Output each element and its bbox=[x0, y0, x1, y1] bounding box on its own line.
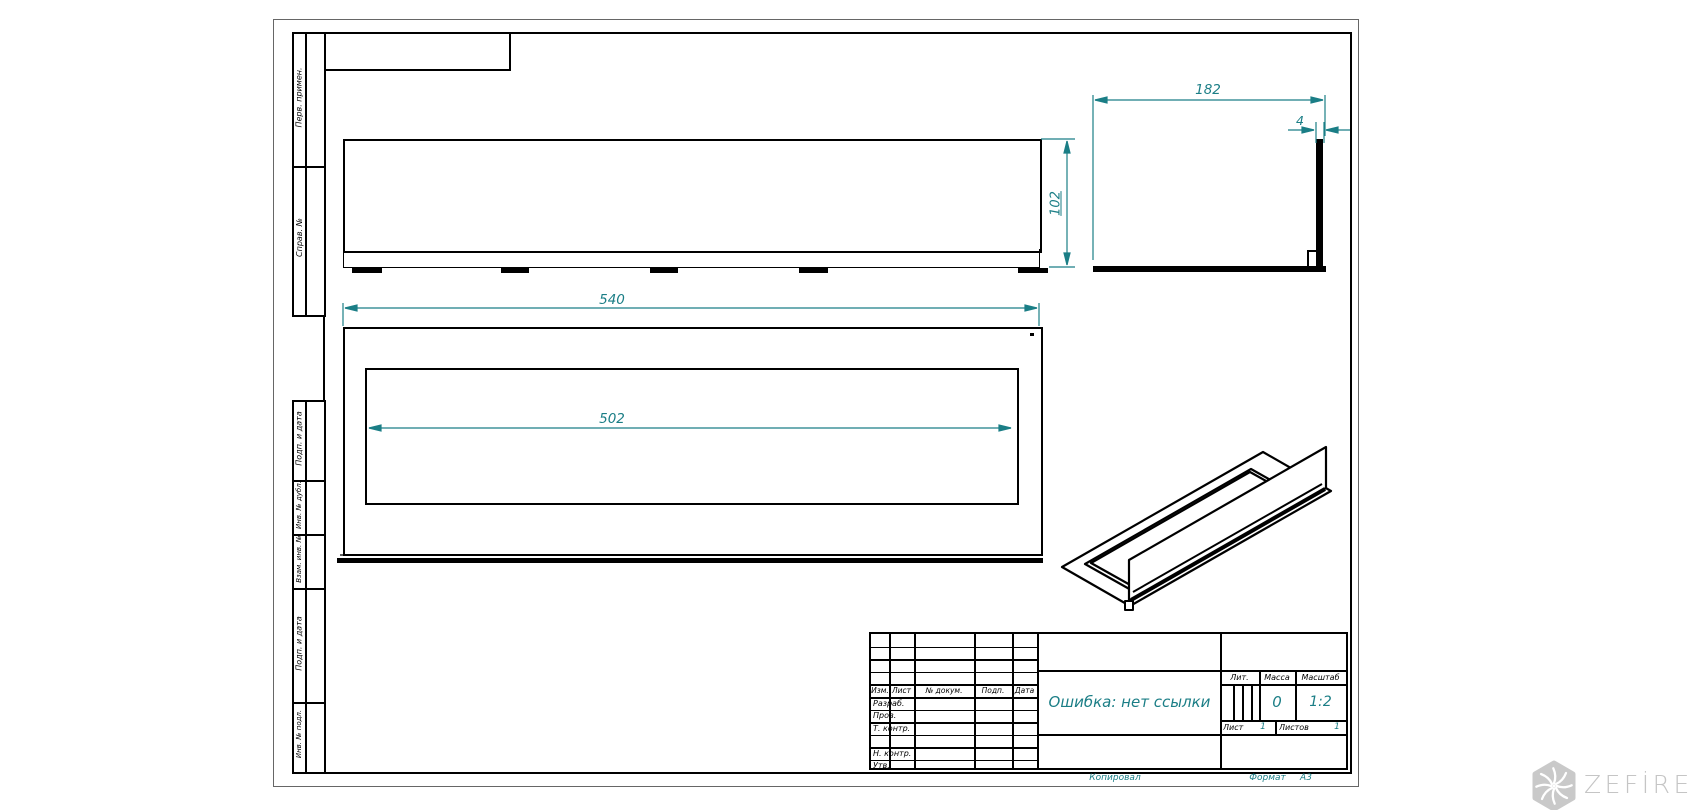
footer-format-value: А3 bbox=[1292, 771, 1320, 784]
tb-lit-label: Лит. bbox=[1220, 670, 1259, 684]
dim-182-label: 182 bbox=[1178, 82, 1238, 98]
tb-list-label: Лист bbox=[1223, 720, 1253, 734]
tb-row-tkontr: Т. контр. bbox=[873, 722, 915, 734]
zefire-logo-text: ZEFİRE bbox=[1584, 770, 1691, 799]
tb-row-razrab: Разраб. bbox=[873, 697, 915, 709]
margin-label: Подп. и дата bbox=[295, 399, 304, 479]
margin-label: Инв. № дубл. bbox=[295, 478, 303, 532]
margin-label: Перв. примен. bbox=[295, 31, 304, 165]
margin-label: Справ. № bbox=[295, 164, 304, 311]
tb-massa-label: Масса bbox=[1259, 670, 1295, 684]
tb-list-value: 1 bbox=[1255, 720, 1271, 734]
front-view-body bbox=[343, 139, 1042, 253]
dim-502-label: 502 bbox=[582, 411, 642, 427]
footer-format-label: Формат bbox=[1240, 771, 1295, 784]
tb-row-utv: Утв. bbox=[873, 760, 915, 772]
dim-102-label: 102 bbox=[1049, 182, 1064, 226]
tb-massa-value: 0 bbox=[1259, 684, 1295, 720]
tb-masshtab-label: Масштаб bbox=[1295, 670, 1346, 684]
tb-col-list: Лист bbox=[889, 684, 914, 697]
tb-listov-value: 1 bbox=[1329, 720, 1345, 734]
plan-view-hole-mark bbox=[1030, 333, 1034, 336]
tb-row-nkontr: Н. контр. bbox=[873, 747, 915, 759]
margin-label: Инв. № подл. bbox=[295, 700, 303, 768]
plan-view-opening bbox=[365, 368, 1019, 505]
tb-col-izm: Изм. bbox=[871, 684, 889, 697]
footer-kopiroval: Копировал bbox=[1075, 771, 1155, 784]
zefire-logo-icon bbox=[1535, 763, 1573, 809]
tb-doc-title: Ошибка: нет ссылки bbox=[1039, 672, 1220, 732]
drawing-sheet-canvas: Перв. примен. Справ. № Подп. и дата Инв.… bbox=[0, 0, 1691, 810]
tb-col-podp: Подп. bbox=[974, 684, 1012, 697]
margin-label: Подп. и дата bbox=[295, 587, 304, 701]
tb-masshtab-value: 1:2 bbox=[1295, 684, 1346, 720]
dim-540-label: 540 bbox=[582, 292, 642, 308]
dim-4-label: 4 bbox=[1290, 113, 1310, 128]
margin-label: Взам. инв. № bbox=[295, 532, 303, 586]
tb-col-dokum: № докум. bbox=[914, 684, 974, 697]
top-left-stamp-box bbox=[323, 32, 511, 71]
tb-row-prov: Пров. bbox=[873, 710, 915, 722]
front-view-base-strip bbox=[343, 249, 1040, 268]
tb-listov-label: Листов bbox=[1279, 720, 1321, 734]
tb-col-data: Дата bbox=[1012, 684, 1037, 697]
title-block: Изм. Лист № докум. Подп. Дата Разраб. Пр… bbox=[869, 632, 1348, 770]
